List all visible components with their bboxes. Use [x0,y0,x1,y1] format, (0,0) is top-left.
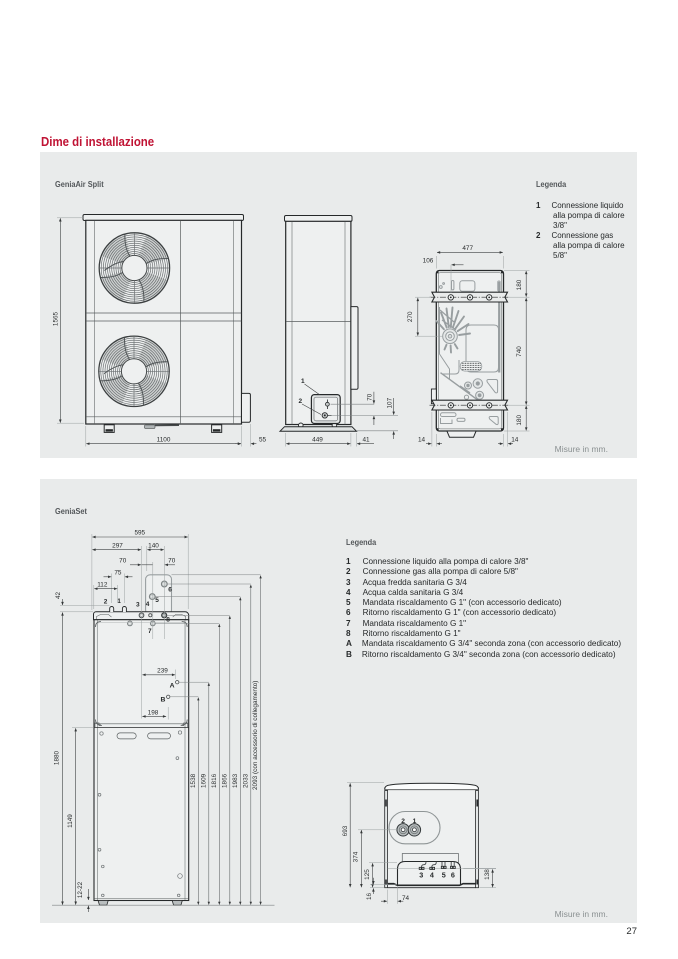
svg-text:2: 2 [299,398,303,405]
svg-text:5: 5 [442,871,446,880]
svg-text:1538: 1538 [190,773,197,788]
svg-text:140: 140 [148,542,159,549]
svg-text:740: 740 [516,346,523,357]
svg-text:1866: 1866 [221,773,228,788]
svg-text:106: 106 [423,257,434,264]
svg-text:1816: 1816 [211,773,218,788]
svg-text:449: 449 [312,436,323,443]
svg-text:74: 74 [402,895,410,902]
svg-text:B: B [160,696,165,703]
svg-text:693: 693 [342,825,349,836]
svg-text:239: 239 [157,667,168,674]
svg-text:180: 180 [516,279,523,290]
svg-text:477: 477 [462,245,473,252]
svg-text:16: 16 [366,893,373,901]
svg-text:270: 270 [407,311,414,322]
svg-text:1: 1 [301,378,305,385]
svg-text:42: 42 [55,592,62,600]
svg-text:1880: 1880 [54,750,61,765]
svg-text:1: 1 [413,818,417,825]
svg-text:1149: 1149 [67,814,74,828]
svg-text:4: 4 [430,871,434,880]
svg-text:2: 2 [104,599,108,606]
svg-text:1100: 1100 [157,436,171,443]
svg-text:41: 41 [362,436,370,443]
svg-text:6: 6 [451,871,455,880]
svg-text:297: 297 [112,542,123,549]
svg-text:6: 6 [168,587,172,594]
svg-text:2093 (con accessorio di colleg: 2093 (con accessorio di collegamento) [252,681,259,790]
svg-text:70: 70 [119,557,127,564]
svg-text:1609: 1609 [200,773,207,788]
svg-text:107: 107 [387,397,394,408]
svg-text:75: 75 [114,569,122,576]
svg-text:374: 374 [353,851,360,862]
svg-text:5: 5 [155,597,159,604]
svg-text:180: 180 [516,415,523,426]
svg-text:14: 14 [418,436,426,443]
svg-text:125: 125 [364,869,371,880]
svg-text:4: 4 [146,601,150,608]
svg-text:1565: 1565 [52,311,59,326]
svg-text:2033: 2033 [242,773,249,788]
svg-text:198: 198 [148,710,159,717]
svg-text:138: 138 [484,869,491,880]
svg-text:70: 70 [168,557,176,564]
svg-text:70: 70 [367,393,374,401]
svg-text:14: 14 [511,436,519,443]
svg-text:1983: 1983 [232,773,239,788]
svg-text:12-22: 12-22 [77,881,84,898]
svg-text:55: 55 [259,436,267,443]
svg-text:112: 112 [97,581,108,588]
svg-text:3: 3 [136,602,140,609]
svg-text:595: 595 [134,530,145,537]
svg-text:3: 3 [419,871,423,880]
svg-text:7: 7 [148,628,152,635]
svg-text:2: 2 [401,818,405,825]
svg-text:A: A [170,682,175,689]
svg-text:8: 8 [166,617,170,624]
